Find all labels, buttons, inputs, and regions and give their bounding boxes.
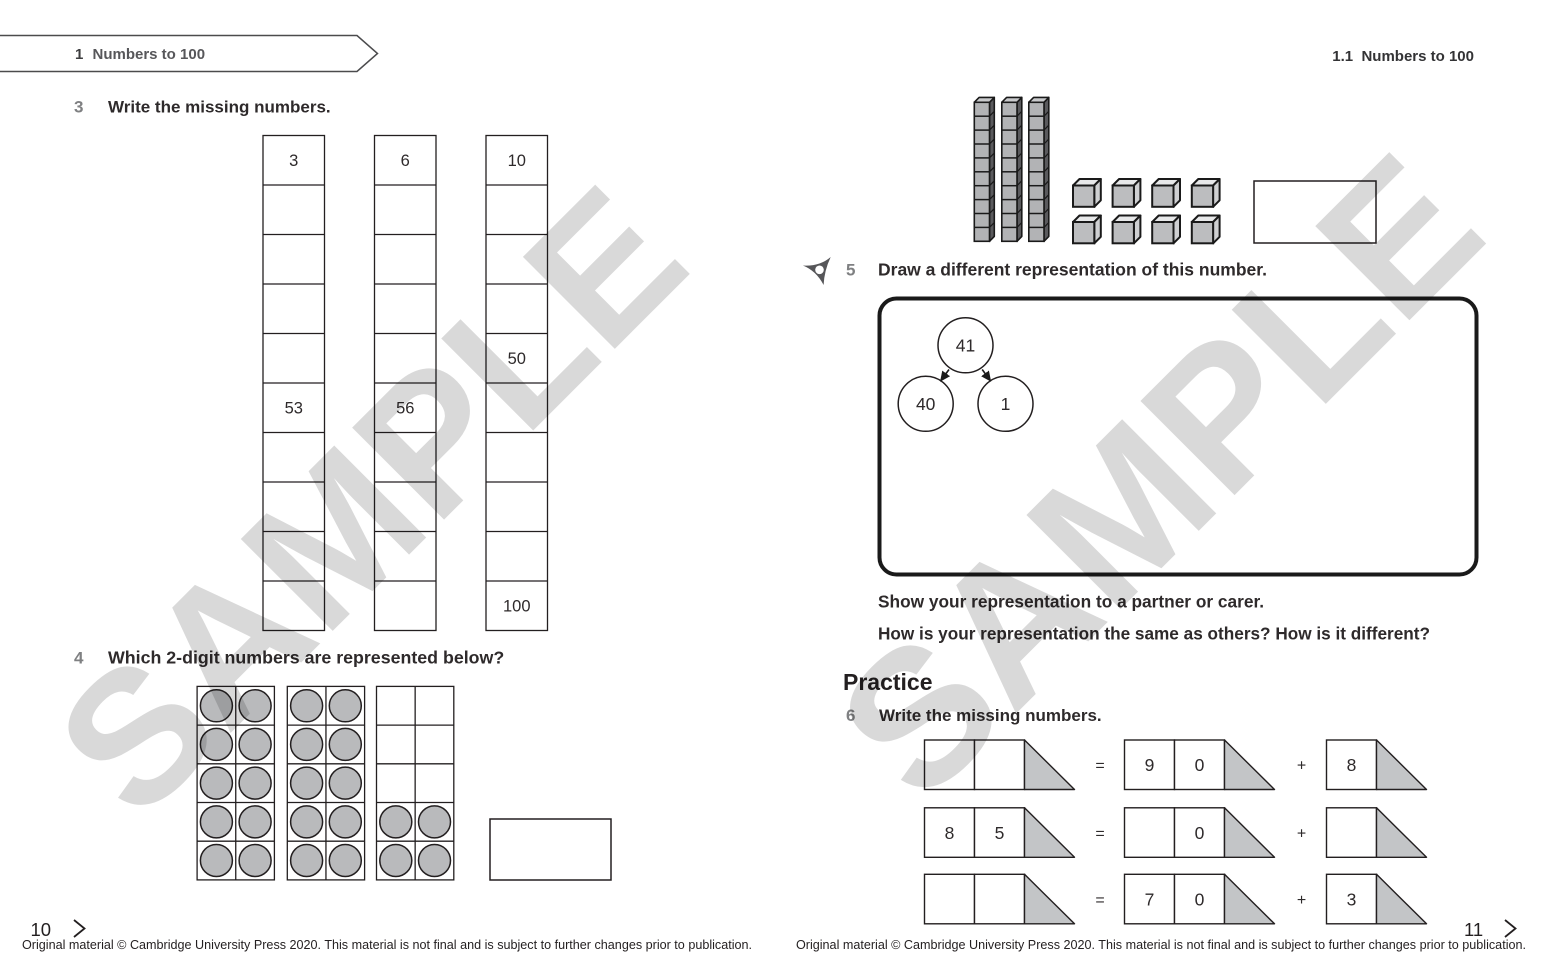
svg-text:1: 1 [75, 46, 83, 63]
svg-text:41: 41 [956, 336, 975, 356]
svg-text:8: 8 [1347, 755, 1357, 775]
svg-text:1.1 Numbers to 100: 1.1 Numbers to 100 [1332, 48, 1474, 65]
svg-text:0: 0 [1195, 755, 1205, 775]
svg-text:0: 0 [1195, 823, 1205, 843]
svg-text:100: 100 [503, 598, 531, 616]
svg-text:Numbers to 100: Numbers to 100 [93, 46, 206, 63]
svg-text:6: 6 [401, 152, 410, 170]
svg-text:1: 1 [1001, 394, 1011, 414]
svg-text:+: + [1297, 892, 1306, 909]
svg-text:40: 40 [916, 394, 936, 414]
svg-text:7: 7 [1145, 889, 1155, 909]
svg-text:9: 9 [1145, 755, 1155, 775]
svg-text:+: + [1297, 758, 1306, 775]
svg-text:5: 5 [846, 261, 855, 280]
svg-text:11: 11 [1464, 919, 1483, 940]
svg-text:3: 3 [74, 98, 83, 117]
svg-text:=: = [1095, 892, 1104, 909]
svg-text:=: = [1095, 825, 1104, 842]
svg-text:+: + [1297, 825, 1306, 842]
svg-text:10: 10 [508, 152, 526, 170]
svg-text:0: 0 [1195, 889, 1205, 909]
svg-text:5: 5 [995, 823, 1005, 843]
svg-text:SAMPLE: SAMPLE [18, 148, 724, 854]
svg-text:10: 10 [31, 919, 52, 940]
svg-text:Original material © Cambridge: Original material © Cambridge University… [22, 938, 752, 952]
svg-text:=: = [1095, 758, 1104, 775]
svg-text:53: 53 [285, 400, 303, 418]
svg-text:Original material © Cambridge: Original material © Cambridge University… [796, 938, 1526, 952]
svg-text:Write the missing numbers.: Write the missing numbers. [108, 98, 331, 117]
svg-text:3: 3 [1347, 889, 1357, 909]
svg-text:3: 3 [289, 152, 298, 170]
